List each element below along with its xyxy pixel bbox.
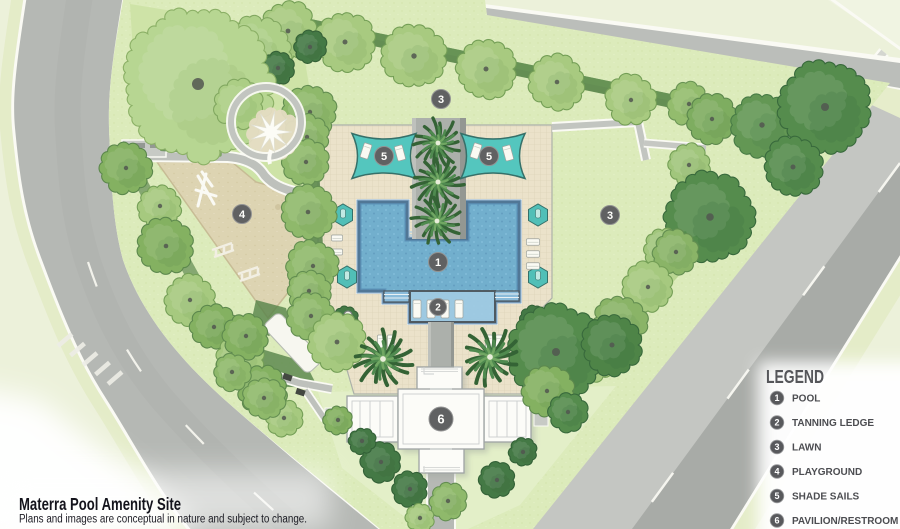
svg-text:PLAYGROUND: PLAYGROUND — [792, 467, 862, 478]
svg-text:LEGEND: LEGEND — [766, 367, 824, 387]
svg-text:POOL: POOL — [792, 394, 820, 405]
svg-text:PAVILION/RESTROOM: PAVILION/RESTROOM — [792, 516, 898, 527]
svg-text:2: 2 — [774, 418, 779, 428]
svg-text:3: 3 — [774, 442, 779, 452]
svg-text:6: 6 — [774, 516, 779, 526]
svg-text:SHADE SAILS: SHADE SAILS — [792, 492, 860, 503]
svg-text:LAWN: LAWN — [792, 443, 821, 454]
svg-text:TANNING LEDGE: TANNING LEDGE — [792, 418, 874, 429]
svg-text:4: 4 — [774, 467, 779, 477]
svg-text:Plans and images are conceptua: Plans and images are conceptual in natur… — [19, 514, 307, 526]
svg-text:Materra Pool Amenity Site: Materra Pool Amenity Site — [19, 494, 181, 514]
svg-text:5: 5 — [774, 491, 779, 501]
svg-text:1: 1 — [774, 393, 779, 403]
